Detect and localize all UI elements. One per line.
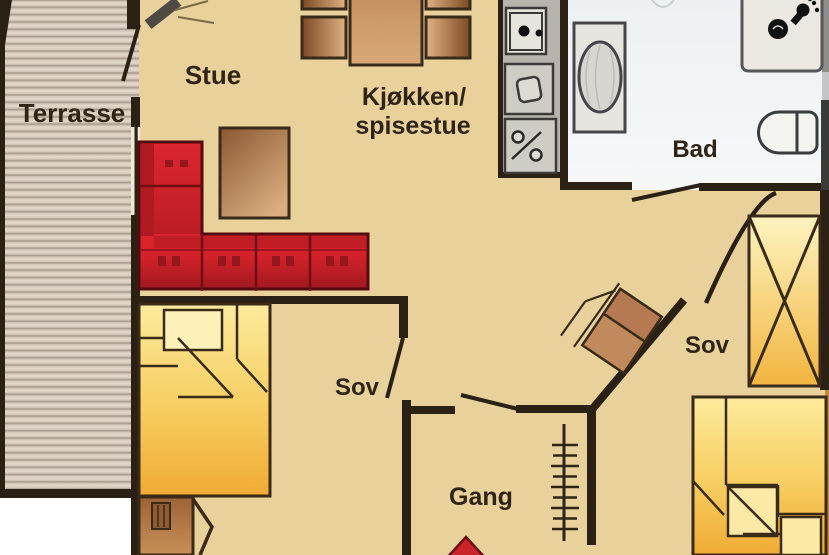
- svg-text:Terrasse: Terrasse: [19, 98, 126, 128]
- svg-text:Bad: Bad: [672, 136, 717, 163]
- svg-text:Stue: Stue: [185, 60, 241, 90]
- svg-text:Sov: Sov: [335, 374, 380, 401]
- svg-text:Gang: Gang: [449, 483, 513, 511]
- svg-text:spisestue: spisestue: [355, 112, 470, 140]
- svg-text:Sov: Sov: [685, 332, 730, 359]
- svg-text:Kjøkken/: Kjøkken/: [362, 83, 466, 111]
